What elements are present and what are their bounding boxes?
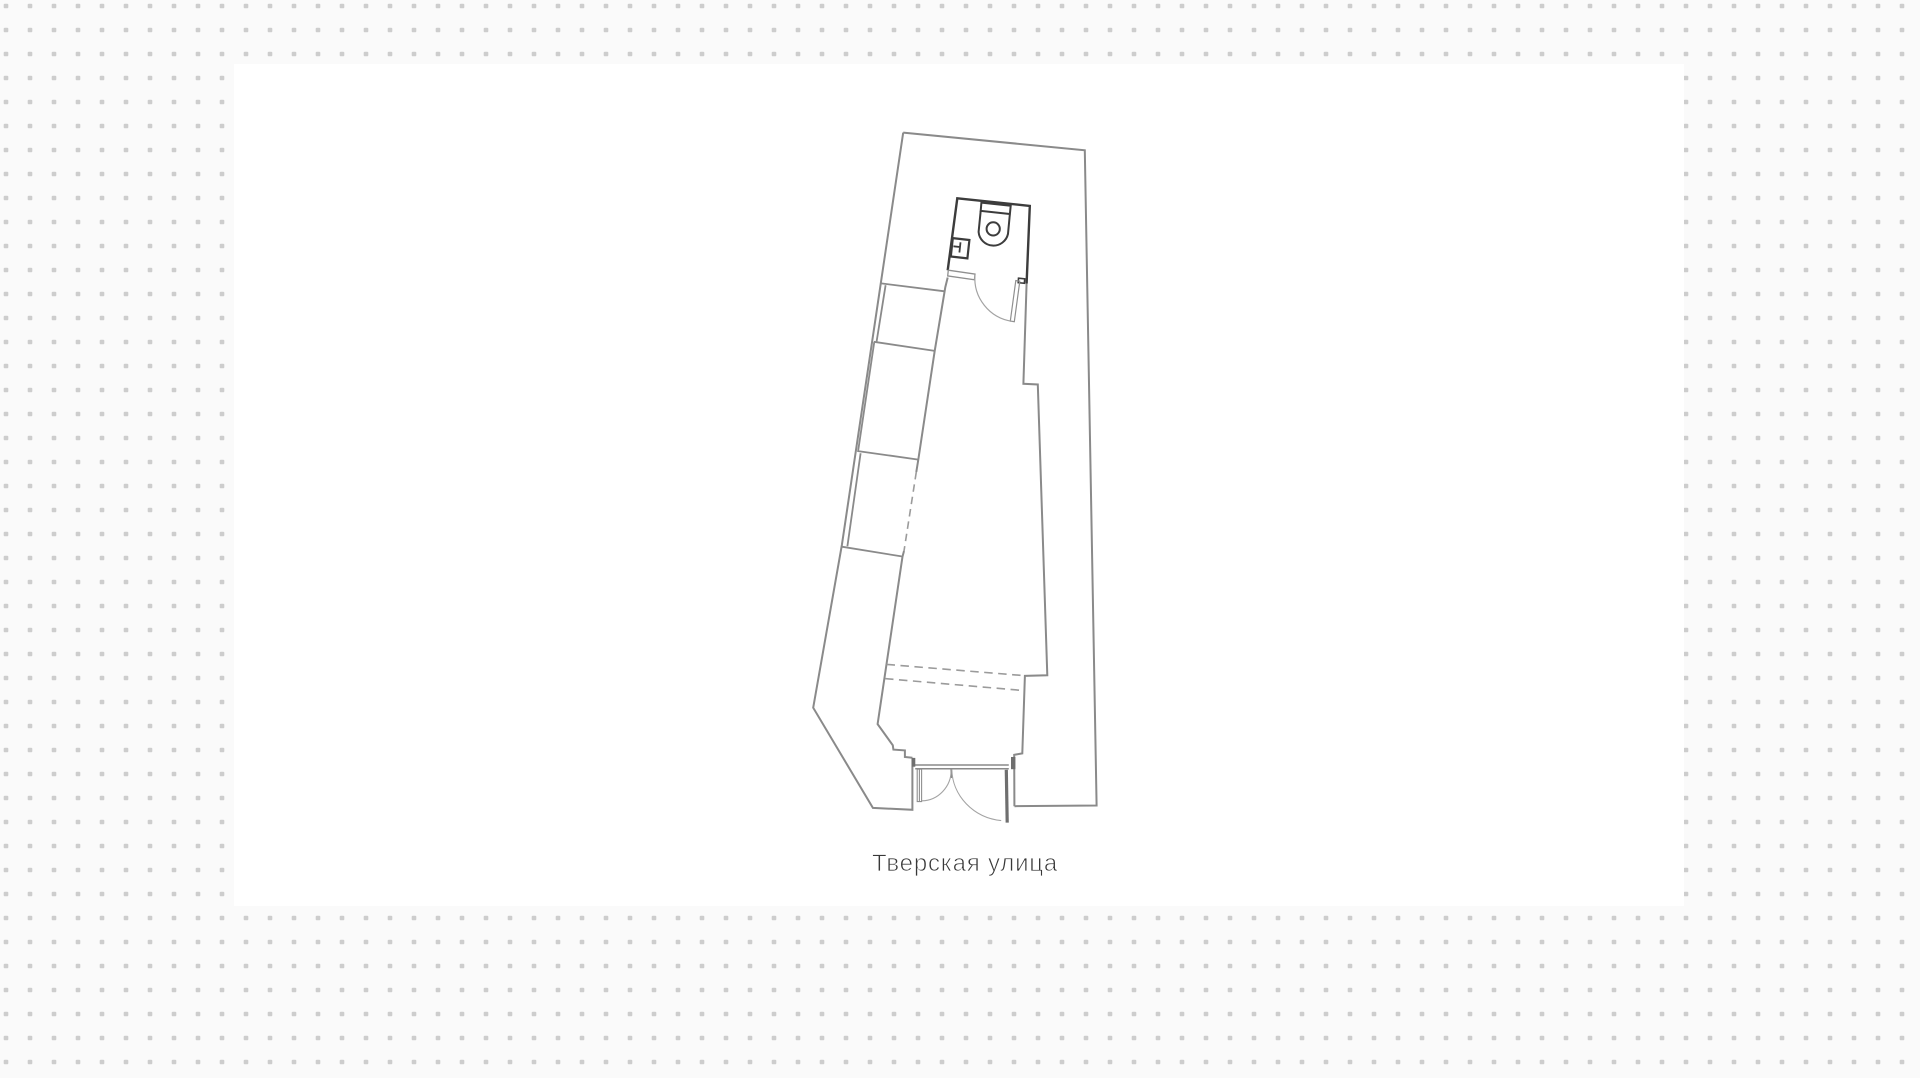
svg-text:Тверская улица: Тверская улица	[872, 850, 1058, 877]
